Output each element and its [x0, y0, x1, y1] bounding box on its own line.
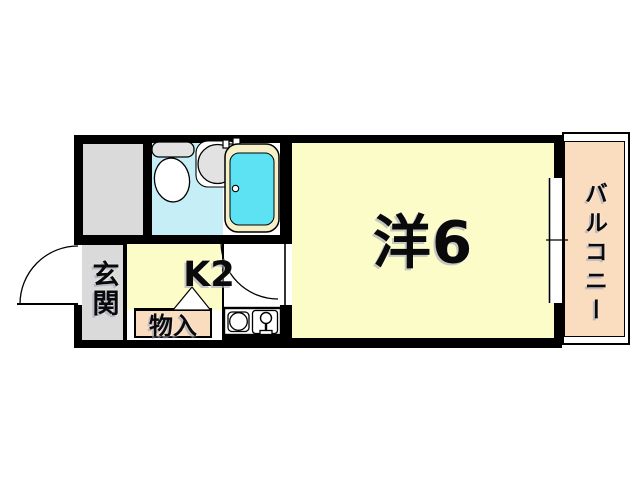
bath-area: [223, 143, 280, 235]
floorplan-canvas: 洋6 K2 玄関 物入 バルコニー: [0, 0, 640, 480]
western-room-label: 洋6: [373, 196, 473, 280]
entrance-door-swing: [17, 246, 78, 304]
entrance-door-opening: [74, 245, 82, 305]
western-door-opening: [280, 244, 292, 305]
entrance-label: 玄関: [90, 260, 117, 318]
toilet-room: [152, 143, 223, 235]
balcony-window-opening: [548, 178, 562, 303]
kitchen-label: K2: [183, 255, 234, 295]
storage-label: 物入: [149, 306, 197, 341]
utility-gray-area: [82, 143, 144, 236]
floorplan-page: { "diagram_type": "apartment-floor-plan"…: [0, 0, 640, 480]
balcony-label: バルコニー: [582, 182, 605, 327]
